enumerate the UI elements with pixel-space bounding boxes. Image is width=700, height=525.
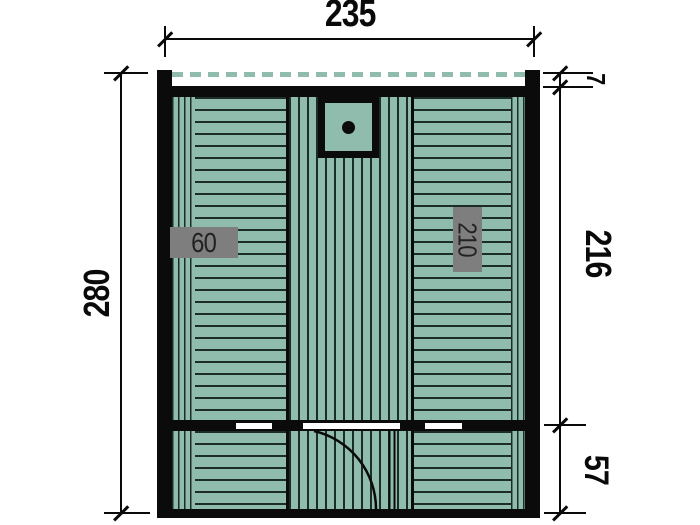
front-left-edge-planks [172,431,195,509]
right-edge-planks [511,97,525,420]
dim-main-depth-value: 216 [577,230,619,278]
extension-line [533,26,535,57]
front-right-deck [414,431,511,509]
floor-plan: 235 280 7 216 57 60 210 [0,0,700,525]
extension-line [544,424,586,426]
bench-length-label: 210 [453,207,482,272]
front-right-edge-planks [511,431,525,509]
extension-line [104,512,150,514]
dim-width-line [165,38,534,40]
extension-line [104,72,148,74]
dim-height-value: 280 [76,269,118,317]
bottom-wall [157,509,540,518]
stove [318,96,379,158]
roof-edge-dashed-line [172,72,525,77]
dim-right-line [559,73,561,513]
bench-width-label: 60 [170,227,238,258]
dim-width-value: 235 [325,0,376,36]
left-edge-planks [172,97,195,420]
left-wall [157,70,172,518]
dim-front-depth-label: 57 [566,451,626,489]
left-bench [195,97,286,420]
dim-front-depth-value: 57 [577,455,616,485]
front-left-deck [195,431,286,509]
extension-line [544,512,586,514]
right-wall [525,70,540,518]
extension-line [164,26,166,57]
door-swing [286,431,414,509]
dim-width-label: 235 [285,0,415,32]
door-opening [303,423,400,429]
stove-dot [342,121,355,134]
dim-overhang-value: 7 [581,73,612,84]
door-arc [314,431,376,509]
divider-window-left [236,423,272,429]
dim-overhang-label: 7 [580,63,612,95]
bench-length-value: 210 [452,222,483,256]
bench-width-value: 60 [192,227,217,259]
divider-window-right [425,423,462,429]
dim-height-label: 280 [57,273,137,313]
dim-main-depth-label: 216 [558,234,638,274]
